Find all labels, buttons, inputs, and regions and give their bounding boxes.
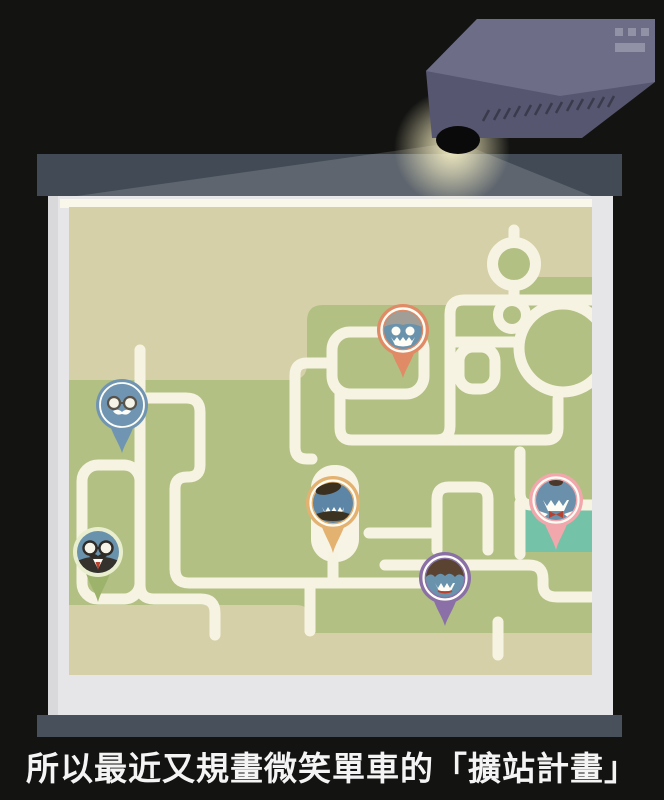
pin-body	[96, 379, 148, 431]
scene	[0, 0, 664, 800]
subtitle-caption: 所以最近又規畫微笑單車的「擴站計畫」	[0, 742, 664, 790]
video-frame: 所以最近又規畫微笑單車的「擴站計畫」	[0, 0, 664, 800]
map-bell-loop	[493, 243, 536, 330]
projected-map	[69, 207, 607, 675]
screen-trim-line	[60, 199, 592, 208]
projector	[426, 19, 655, 154]
projector-lens	[436, 126, 480, 154]
screen-left-shade	[48, 196, 58, 715]
screen-bottom-bar	[37, 715, 622, 737]
